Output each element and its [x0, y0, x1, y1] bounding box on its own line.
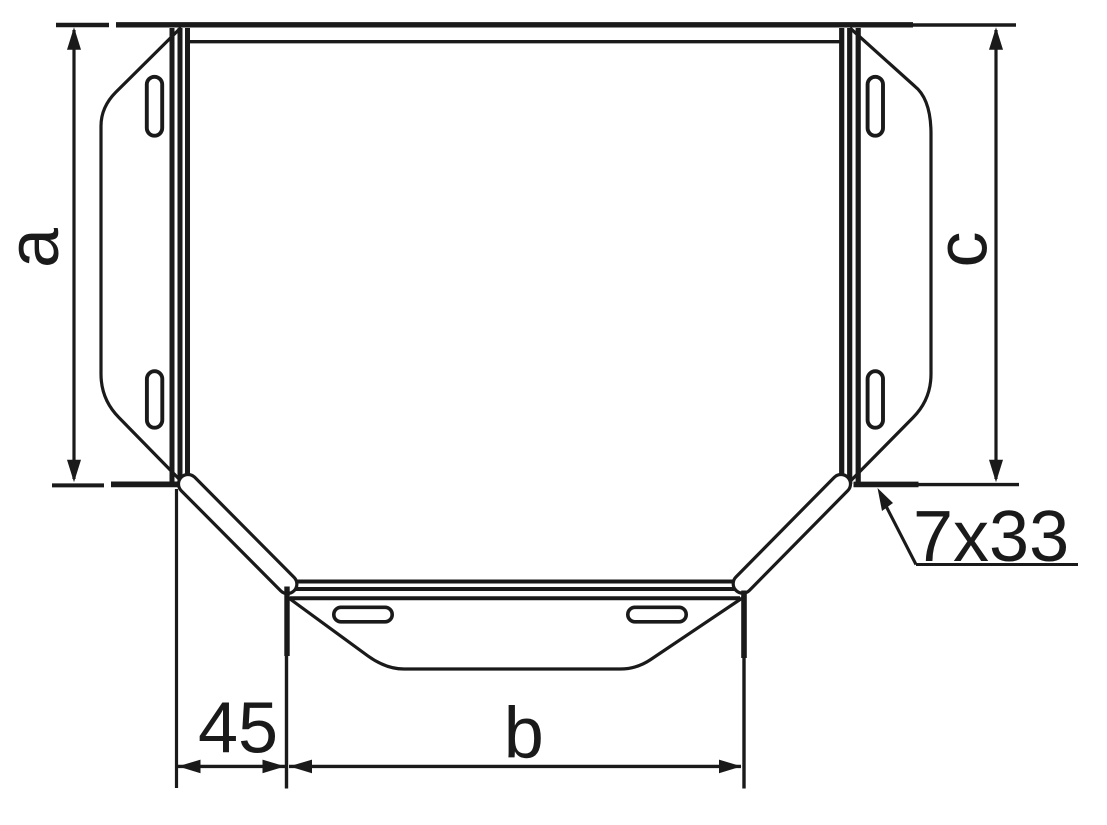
- svg-text:7x33: 7x33: [913, 497, 1069, 577]
- svg-text:a: a: [0, 227, 74, 268]
- svg-text:c: c: [923, 232, 1003, 268]
- svg-text:45: 45: [198, 689, 278, 769]
- svg-text:b: b: [504, 694, 544, 774]
